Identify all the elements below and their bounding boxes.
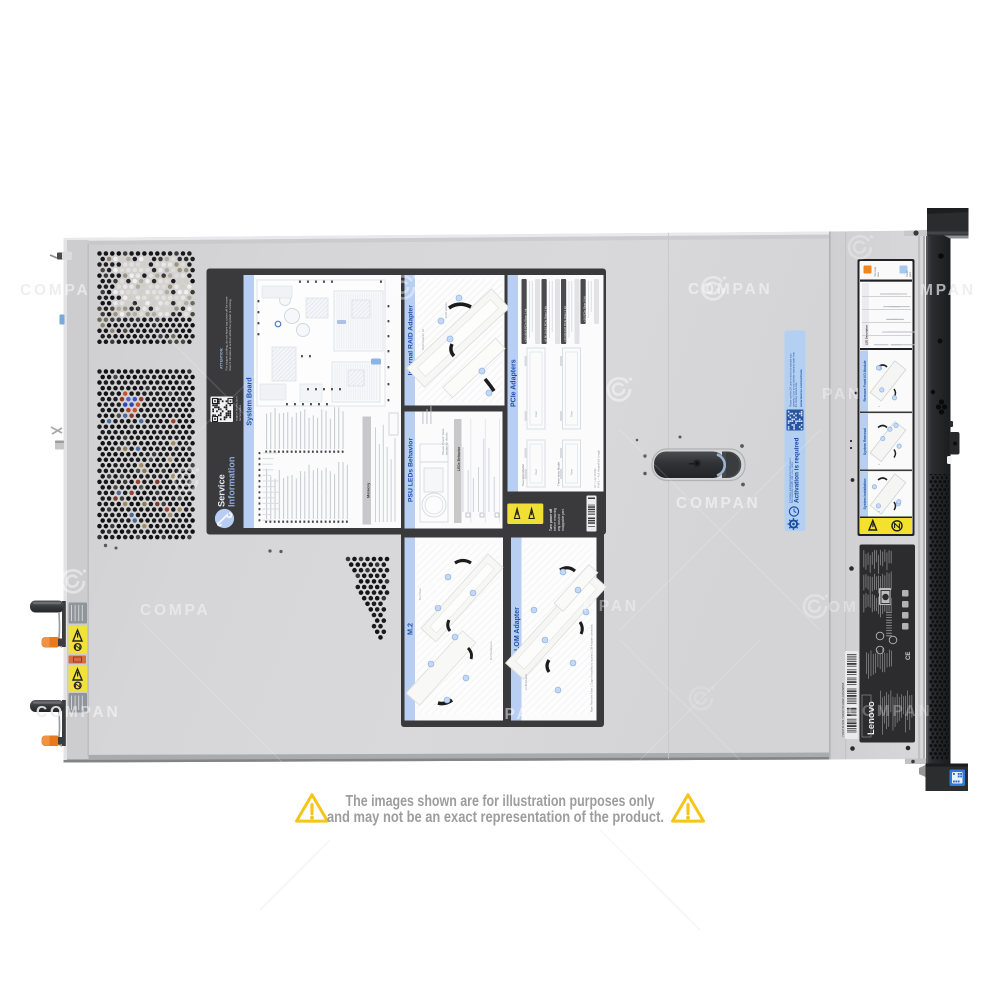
svg-text:/servicevideo: /servicevideo	[238, 404, 242, 421]
svg-text:the factory default date.: the factory default date.	[795, 382, 798, 407]
svg-text:COMPAN: COMPAN	[676, 495, 761, 512]
svg-text:PCIe Adapters: PCIe Adapters	[511, 359, 518, 407]
svg-text:Remove Front I/O Module: Remove Front I/O Module	[863, 360, 867, 401]
svg-text:System Removal: System Removal	[863, 428, 867, 455]
svg-text:Activation is required: Activation is required	[794, 438, 801, 503]
svg-text:COMPAN: COMPAN	[460, 706, 545, 723]
svg-text:Riser: Riser	[534, 469, 538, 475]
svg-text:COMPA: COMPA	[140, 602, 211, 619]
svg-text:point: point	[909, 271, 912, 277]
svg-text:RAID Adapter Kit: RAID Adapter Kit	[421, 329, 425, 350]
svg-text:Memory: Memory	[365, 482, 370, 498]
svg-text:swappable part.: swappable part.	[561, 508, 565, 531]
svg-text:than 2 minutes at a time while: than 2 minutes at a time while the syste…	[228, 298, 232, 370]
svg-text:OM: OM	[828, 599, 859, 616]
svg-text:and may not be an exact repres: and may not be an exact representation o…	[327, 809, 664, 826]
svg-text:MPAN: MPAN	[583, 598, 639, 615]
svg-text:x16/x8/x8 PCIe Riser 1 kit: x16/x8/x8 PCIe Riser 1 kit	[523, 309, 527, 342]
svg-text:FH/HL = Full Height/Half Lengt: FH/HL = Full Height/Half Length	[596, 449, 600, 488]
svg-text:Two-slots Model: Two-slots Model	[521, 464, 525, 486]
svg-text:New Germany GmbH, visit, www..: New Germany GmbH, visit, www.. terms	[791, 461, 794, 503]
svg-text:beside for details: beside for details	[445, 432, 449, 455]
svg-text:Riser: Riser	[570, 469, 574, 475]
svg-text:System Installation: System Installation	[863, 479, 867, 510]
svg-text:ATTENTION:: ATTENTION:	[220, 348, 224, 370]
svg-text:RAID adapter: RAID adapter	[444, 302, 448, 318]
svg-text:x8 ML2/x16 PCIe Riser 1 kit: x8 ML2/x16 PCIe Riser 1 kit	[543, 306, 547, 342]
svg-text:LED Description: LED Description	[865, 324, 869, 345]
svg-text:Note: Remove Riser 1 Cage if i: Note: Remove Riser 1 Cage if installed t…	[590, 624, 594, 712]
svg-text:M.2: M.2	[406, 623, 415, 635]
svg-text:www.lenovo.com/activate: www.lenovo.com/activate	[799, 369, 803, 408]
svg-text:PSU LEDs Behavior: PSU LEDs Behavior	[408, 438, 415, 503]
svg-text:x16 PCIe Riser 2 kit: x16 PCIe Riser 2 kit	[582, 296, 586, 322]
svg-text:Service: Service	[217, 474, 227, 507]
svg-text:M.2 Drive: M.2 Drive	[418, 588, 422, 600]
svg-text:area: area	[877, 272, 880, 277]
svg-text:Riser: Riser	[570, 411, 574, 417]
svg-text:M.2 Backplane: M.2 Backplane	[489, 641, 493, 660]
svg-text:LEDs Behavior: LEDs Behavior	[457, 446, 461, 471]
svg-text:MPAN: MPAN	[920, 282, 976, 299]
svg-text:CE: CE	[906, 652, 912, 660]
svg-text:Three-slots Model: Three-slots Model	[557, 462, 561, 486]
svg-text:Information: Information	[227, 456, 237, 507]
svg-text:COMPAN: COMPAN	[848, 703, 933, 720]
svg-text:7X06TM S/N 7X06CTO1WW J3AVW848: 7X06TM S/N 7X06CTO1WW J3AVW848	[841, 682, 845, 737]
svg-text:The images shown are for illus: The images shown are for illustration pu…	[346, 793, 655, 810]
svg-text:Riser: Riser	[534, 411, 538, 417]
svg-text:LOM Adapter: LOM Adapter	[514, 607, 521, 651]
svg-text:LOM Adapter: LOM Adapter	[524, 673, 528, 690]
svg-text:PAN: PAN	[822, 386, 862, 403]
svg-text:x16 ML2/x8 PCIe Riser 1 kit: x16 ML2/x8 PCIe Riser 1 kit	[563, 306, 567, 342]
